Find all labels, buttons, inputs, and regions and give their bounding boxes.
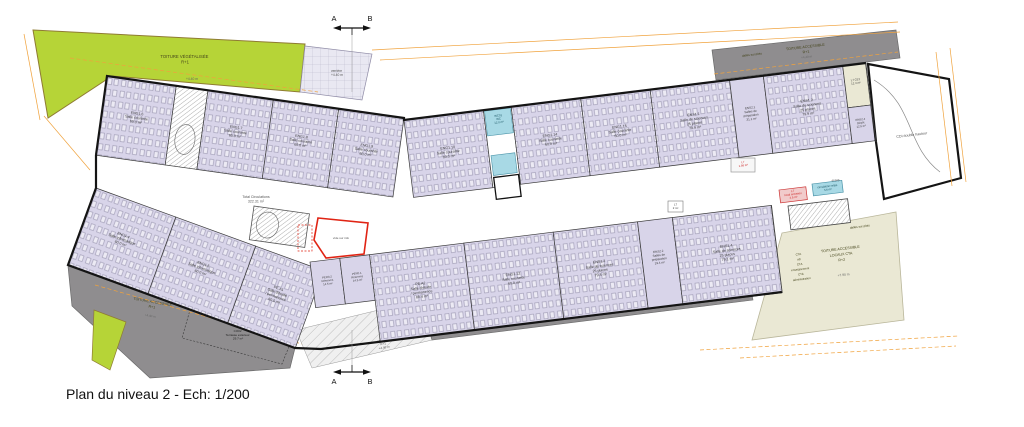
room-label: L7 CE312.3 m² [851, 77, 862, 86]
svg-text:verrière +4.40 m: verrière +4.40 m [331, 69, 343, 77]
lower-band: PER0.2Réserves14.5 m² PER0.1Réserves14.5… [310, 205, 782, 349]
floor-plan-page: TOITURE VÉGÉTALISÉE R+1 +4.40 m verrière… [0, 0, 1024, 427]
arrow-right-icon [363, 25, 371, 31]
room-label: ENS2.4Dépôt12.5 m² [855, 117, 866, 129]
section-b-label: B [367, 14, 372, 23]
cdi-block: CDI double hauteur [868, 64, 961, 199]
svg-text:R+1: R+1 [802, 50, 809, 55]
l7-box-tiny: L72 m² [668, 201, 683, 212]
circulation-label: Total Circulations322.31 m² [242, 195, 270, 203]
floor-plan-drawing: TOITURE VÉGÉTALISÉE R+1 +4.40 m verrière… [0, 0, 1024, 427]
green-roof-label: TOITURE VÉGÉTALISÉE [160, 54, 208, 59]
svg-text:R+2: R+2 [838, 258, 845, 263]
vide-sur-info: vide sur info [298, 218, 368, 258]
arrow-left-icon [333, 369, 341, 375]
svg-text:vide sur info: vide sur info [333, 236, 350, 240]
section-a-label: A [331, 377, 336, 386]
section-b-label: B [367, 377, 372, 386]
wc-room-2 [491, 153, 517, 176]
section-marker-bottom: A B [331, 365, 372, 386]
service-room [494, 174, 521, 199]
relais-box: circulation relais3.6 m² [812, 180, 843, 196]
section-a-label: A [331, 14, 336, 23]
room-l7-ce3 [843, 63, 871, 107]
section-marker-top: A B [331, 14, 372, 35]
arrow-right-icon [363, 369, 371, 375]
center-stair [249, 206, 309, 247]
plan-caption: Plan du niveau 2 - Ech: 1/200 [66, 386, 250, 402]
green-roof-level: +4.40 m [186, 77, 198, 81]
entretien-box: L7local entretien4.5 m² [779, 187, 807, 203]
verriere-top: verrière +4.40 m [300, 46, 372, 100]
l7-box-corridor: L71.98 m² [731, 158, 755, 172]
arrow-left-icon [333, 25, 341, 31]
